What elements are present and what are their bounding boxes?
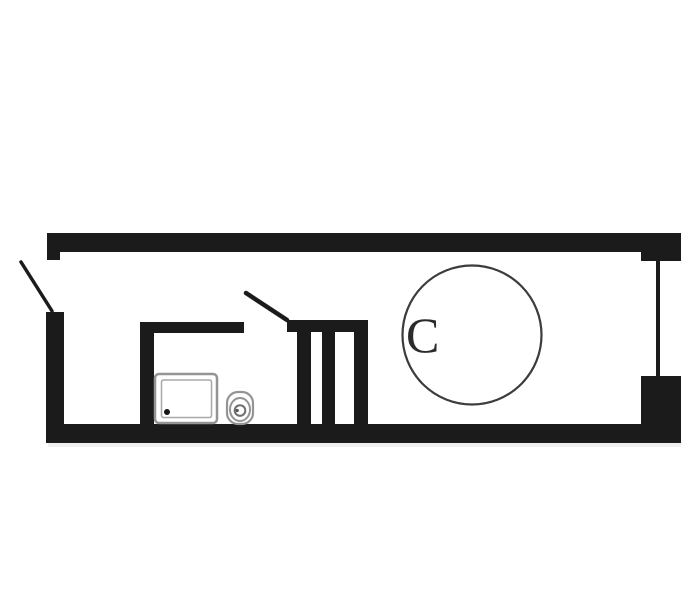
window-icon — [656, 261, 660, 376]
left-wall — [46, 312, 64, 443]
top-wall — [47, 233, 681, 252]
room-label: C — [406, 307, 439, 363]
shaft-top-wall — [287, 320, 368, 332]
floor-plan-canvas: C — [0, 0, 694, 600]
bathroom-wall-top — [140, 322, 244, 333]
shaft-walls — [287, 320, 368, 427]
shaft-partition-2 — [322, 332, 335, 427]
right-window-jamb-top — [641, 233, 681, 261]
right-window-jamb-bottom — [641, 376, 681, 443]
bathroom-wall-left — [140, 322, 154, 437]
bathroom-door-swing-icon — [246, 293, 287, 320]
entry-door-swing-icon — [21, 262, 52, 311]
shaft-partition-1 — [297, 332, 311, 427]
shower-tray-icon — [155, 374, 217, 423]
toilet-center-dot — [236, 409, 239, 412]
floor-plan-drawing: C — [0, 0, 694, 600]
entry-door-jamb-stub — [47, 233, 60, 260]
shower-tray-outer — [155, 374, 217, 423]
shaft-partition-3 — [354, 332, 368, 427]
wall-shadow — [48, 443, 681, 447]
toilet-icon — [227, 392, 253, 424]
shower-drain-dot — [164, 409, 170, 415]
